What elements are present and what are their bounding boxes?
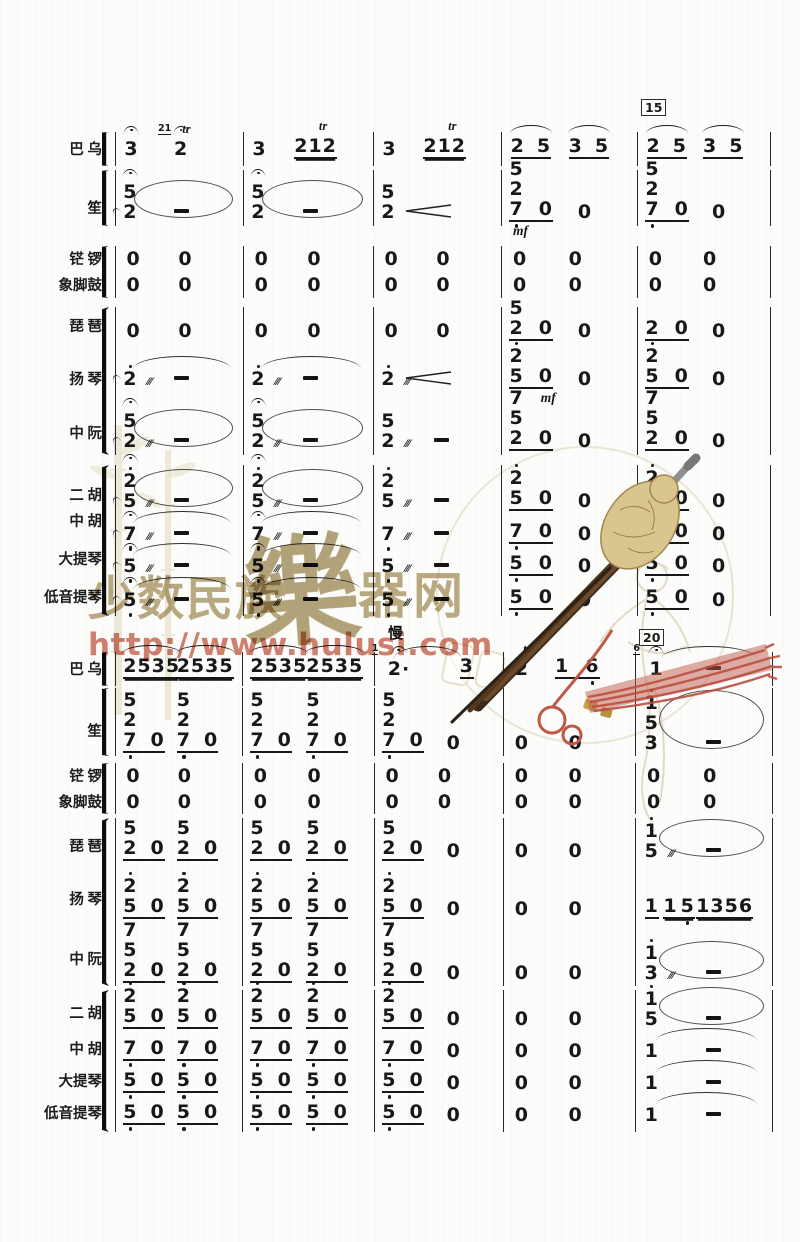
- hulusi-gourd: [585, 458, 696, 584]
- hulusi-tassel: [539, 630, 782, 744]
- rehearsal-mark-15: 15: [641, 99, 666, 116]
- sheet-page: 巴 乌32tr213212tr3212tr25352535笙525252mf52…: [0, 0, 800, 1242]
- hulusi-image: [0, 0, 800, 1242]
- rehearsal-mark-20: 20: [639, 629, 664, 646]
- tempo-mark: 慢: [388, 622, 403, 643]
